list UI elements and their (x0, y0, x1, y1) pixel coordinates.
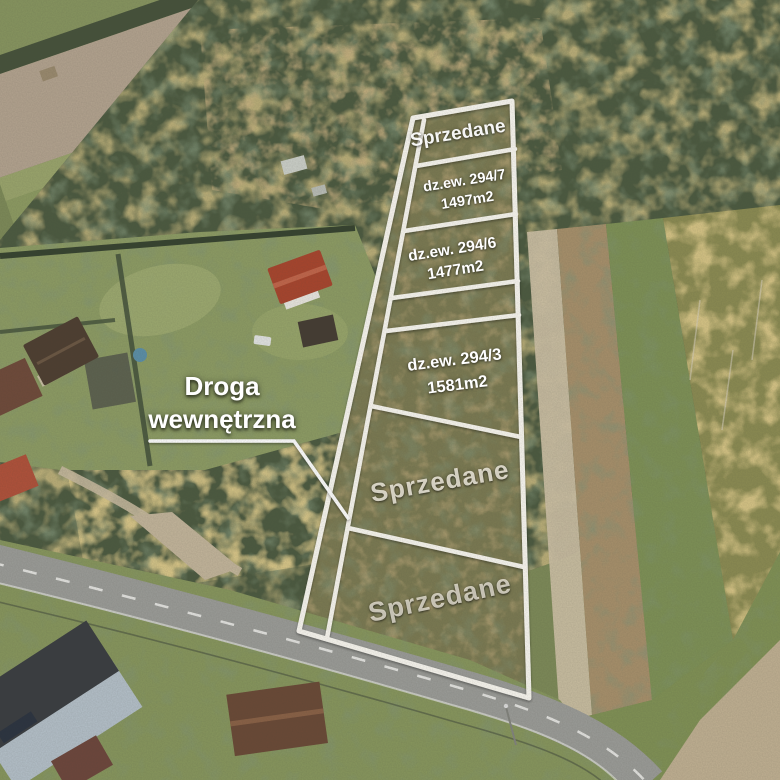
aerial-photo-artwork (0, 0, 780, 780)
aerial-photo: Sprzedane dz.ew. 294/7 1497m2 dz.ew. 294… (0, 0, 780, 780)
internal-road-label-line2: wewnętrzna (142, 403, 302, 436)
internal-road-label: Droga wewnętrzna (142, 370, 302, 437)
internal-road-label-line1: Droga (142, 370, 302, 403)
photo-grain (0, 0, 780, 780)
